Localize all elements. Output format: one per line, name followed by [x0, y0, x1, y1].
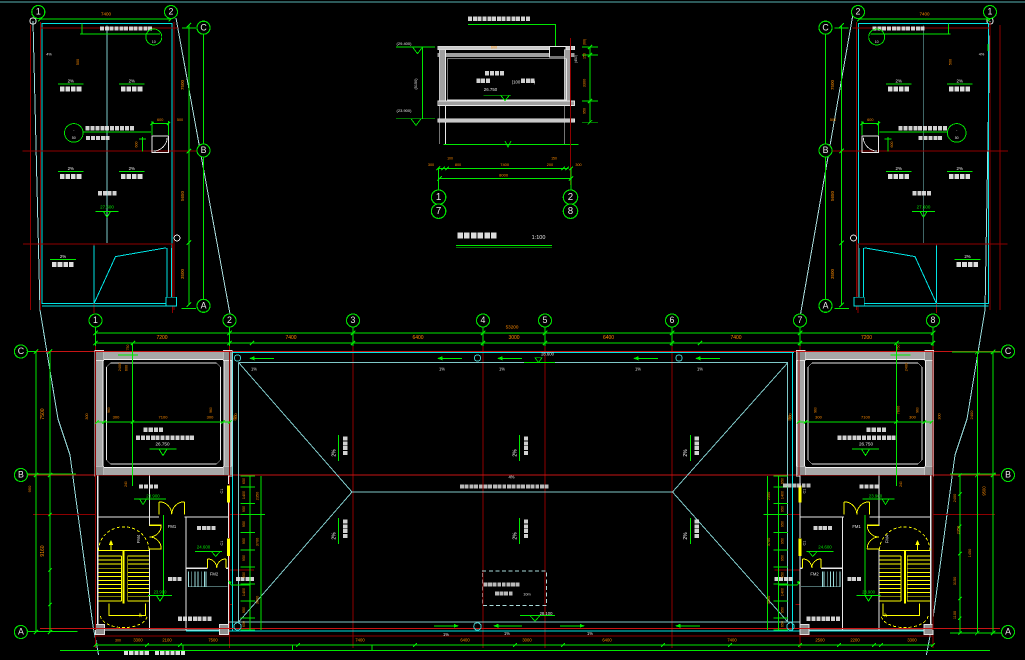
- svg-text:1: 1: [36, 7, 41, 17]
- svg-text:3700: 3700: [767, 538, 771, 546]
- svg-text:2F: 2F: [883, 612, 888, 617]
- svg-text:5650: 5650: [180, 190, 185, 201]
- svg-text:7500: 7500: [830, 79, 835, 90]
- svg-text:1%: 1%: [587, 631, 593, 636]
- svg-text:7100: 7100: [861, 415, 871, 420]
- svg-text:10m: 10m: [523, 592, 530, 596]
- svg-text:950: 950: [242, 572, 246, 578]
- svg-text:950: 950: [781, 572, 785, 578]
- svg-text:2%: 2%: [129, 78, 135, 83]
- svg-text:150: 150: [551, 157, 557, 161]
- svg-text:8: 8: [931, 315, 936, 325]
- svg-text:27.600: 27.600: [100, 205, 114, 210]
- svg-text:650: 650: [242, 621, 246, 627]
- svg-text:B: B: [201, 145, 207, 155]
- svg-text:3500: 3500: [830, 268, 835, 279]
- svg-text:23.900: 23.900: [862, 590, 875, 595]
- svg-text:2%: 2%: [512, 449, 518, 457]
- svg-text:FM4: FM4: [885, 534, 890, 543]
- svg-text:960: 960: [107, 407, 111, 413]
- svg-text:(23.900): (23.900): [397, 108, 413, 113]
- svg-text:3000: 3000: [767, 596, 771, 604]
- svg-text:600: 600: [157, 118, 163, 122]
- svg-text:1400: 1400: [781, 588, 785, 596]
- svg-text:23.900: 23.900: [154, 590, 167, 595]
- svg-text:2%: 2%: [683, 532, 689, 540]
- svg-text:2%: 2%: [332, 449, 338, 457]
- svg-text:5650: 5650: [830, 190, 835, 201]
- svg-text:7500: 7500: [208, 638, 218, 643]
- svg-text:2F: 2F: [138, 612, 143, 617]
- svg-text:3: 3: [351, 315, 356, 325]
- svg-text:750: 750: [126, 345, 130, 351]
- svg-text:3000: 3000: [522, 638, 532, 643]
- svg-text:C1: C1: [220, 489, 224, 494]
- svg-text:200: 200: [547, 163, 553, 167]
- svg-text:3000: 3000: [256, 596, 260, 604]
- svg-text:300: 300: [113, 415, 120, 420]
- svg-text:(60): (60): [583, 39, 587, 45]
- svg-text:7400: 7400: [919, 12, 930, 17]
- svg-text:1%: 1%: [504, 631, 510, 636]
- svg-text:C1: C1: [220, 541, 224, 546]
- svg-text:3300: 3300: [133, 638, 143, 643]
- svg-text:8: 8: [568, 206, 573, 217]
- svg-text:2%: 2%: [896, 166, 902, 171]
- svg-text:C: C: [1005, 346, 1012, 356]
- svg-text:7400: 7400: [730, 335, 741, 341]
- svg-text:6400: 6400: [412, 335, 423, 341]
- svg-text:1400: 1400: [242, 491, 246, 499]
- svg-text:9160: 9160: [40, 545, 46, 556]
- svg-text:7: 7: [436, 206, 441, 217]
- svg-text:1%: 1%: [443, 632, 449, 637]
- svg-text:7400: 7400: [285, 335, 296, 341]
- svg-text:50: 50: [72, 136, 76, 140]
- svg-text:(5150): (5150): [414, 78, 418, 90]
- svg-text:1400: 1400: [781, 491, 785, 499]
- svg-text:1%: 1%: [499, 367, 505, 372]
- svg-text:950: 950: [242, 538, 246, 544]
- svg-text:2400: 2400: [905, 363, 909, 371]
- svg-text:950: 950: [781, 555, 785, 561]
- svg-text:960: 960: [209, 407, 213, 413]
- svg-text:960: 960: [814, 407, 818, 413]
- svg-text:26.750: 26.750: [859, 441, 873, 446]
- svg-text:500: 500: [830, 118, 836, 122]
- svg-text:600: 600: [491, 46, 497, 50]
- svg-text:7400: 7400: [355, 638, 365, 643]
- svg-text:(450): (450): [574, 55, 578, 63]
- svg-text:1: 1: [436, 192, 441, 203]
- svg-text:7: 7: [798, 315, 803, 325]
- svg-text:6400: 6400: [602, 638, 612, 643]
- svg-text:1400: 1400: [242, 588, 246, 596]
- svg-text:2350: 2350: [767, 492, 771, 500]
- svg-text:250: 250: [233, 415, 237, 421]
- svg-text:1:100: 1:100: [532, 235, 546, 241]
- svg-text:28.600: 28.600: [541, 352, 554, 357]
- svg-text:2500: 2500: [815, 638, 825, 643]
- svg-text:7500: 7500: [40, 408, 46, 419]
- svg-text:950: 950: [242, 555, 246, 561]
- svg-text:950: 950: [27, 485, 32, 492]
- svg-text:A: A: [1005, 627, 1011, 637]
- svg-text:950: 950: [781, 521, 785, 527]
- svg-text:650: 650: [242, 478, 246, 484]
- svg-text:A: A: [18, 627, 24, 637]
- svg-text:C1: C1: [803, 541, 807, 546]
- svg-text:2350: 2350: [957, 526, 961, 534]
- svg-text:2200: 2200: [850, 638, 860, 643]
- svg-text:2%: 2%: [332, 532, 338, 540]
- svg-text:C: C: [822, 22, 829, 32]
- svg-text:500: 500: [177, 118, 183, 122]
- svg-text:150: 150: [583, 53, 587, 59]
- svg-text:300: 300: [428, 163, 434, 167]
- svg-text:950: 950: [242, 506, 246, 512]
- svg-text:240: 240: [899, 481, 903, 487]
- svg-text:250: 250: [788, 415, 792, 421]
- svg-text:650: 650: [781, 621, 785, 627]
- svg-text:7100: 7100: [159, 415, 169, 420]
- svg-text:2: 2: [227, 315, 232, 325]
- svg-text:(29.400): (29.400): [397, 41, 413, 46]
- svg-text:500: 500: [76, 59, 80, 65]
- svg-text:1100: 1100: [953, 611, 957, 619]
- svg-text:2350: 2350: [256, 492, 260, 500]
- svg-text:650: 650: [781, 478, 785, 484]
- svg-text:6400: 6400: [460, 638, 470, 643]
- svg-text:B: B: [18, 470, 24, 480]
- svg-text:9500: 9500: [982, 486, 987, 496]
- svg-text:1450: 1450: [968, 549, 972, 557]
- svg-text:240: 240: [124, 481, 128, 487]
- svg-text:A: A: [201, 300, 207, 310]
- svg-text:7500: 7500: [180, 79, 185, 90]
- svg-text:2%: 2%: [896, 78, 902, 83]
- svg-text:50: 50: [955, 136, 959, 140]
- svg-text:1: 1: [988, 7, 993, 17]
- svg-text:7200: 7200: [861, 335, 872, 341]
- svg-text:500: 500: [949, 59, 953, 65]
- svg-text:10: 10: [875, 40, 879, 44]
- svg-text:4: 4: [481, 315, 486, 325]
- svg-text:27.600: 27.600: [917, 205, 931, 210]
- svg-text:3300: 3300: [907, 638, 917, 643]
- svg-text:7400: 7400: [500, 162, 510, 167]
- svg-text:800: 800: [455, 163, 461, 167]
- svg-text:1: 1: [93, 315, 98, 325]
- svg-text:950: 950: [781, 607, 785, 613]
- svg-text:300: 300: [938, 413, 942, 419]
- svg-text:2%: 2%: [512, 532, 518, 540]
- svg-text:2%: 2%: [129, 166, 135, 171]
- svg-text:B: B: [1005, 470, 1011, 480]
- svg-text:2%: 2%: [68, 166, 74, 171]
- svg-text:(100: (100: [512, 80, 521, 85]
- svg-text:7600: 7600: [897, 406, 901, 414]
- svg-text:2%: 2%: [683, 449, 689, 457]
- svg-text:6: 6: [670, 315, 675, 325]
- svg-text:3700: 3700: [256, 538, 260, 546]
- svg-text:B: B: [823, 145, 829, 155]
- svg-text:1%: 1%: [635, 367, 641, 372]
- svg-text:950: 950: [781, 506, 785, 512]
- svg-text:1%: 1%: [697, 367, 703, 372]
- svg-text:5: 5: [543, 315, 548, 325]
- svg-text:1%: 1%: [251, 367, 257, 372]
- svg-text:300: 300: [909, 415, 916, 420]
- svg-text:950: 950: [242, 607, 246, 613]
- svg-text:2%: 2%: [68, 78, 74, 83]
- svg-text:A: A: [823, 300, 829, 310]
- svg-text:FM1: FM1: [168, 524, 177, 529]
- svg-text:600: 600: [890, 142, 894, 148]
- svg-text:2: 2: [169, 7, 174, 17]
- svg-text:2%: 2%: [957, 78, 963, 83]
- svg-text:300: 300: [575, 163, 581, 167]
- svg-text:24.600: 24.600: [818, 544, 832, 549]
- svg-text:7200: 7200: [156, 335, 167, 341]
- svg-text:950: 950: [242, 521, 246, 527]
- svg-text:7400: 7400: [101, 12, 112, 17]
- svg-text:300: 300: [85, 413, 89, 419]
- svg-text:3300: 3300: [583, 79, 587, 87]
- svg-text:6400: 6400: [603, 335, 614, 341]
- svg-text:3000: 3000: [508, 335, 519, 341]
- svg-text:750: 750: [897, 345, 901, 351]
- svg-text:4%: 4%: [979, 53, 985, 57]
- svg-text:23.900: 23.900: [869, 493, 883, 498]
- svg-text:950: 950: [781, 538, 785, 544]
- svg-text:1%: 1%: [439, 367, 445, 372]
- svg-text:600: 600: [135, 142, 139, 148]
- svg-text:300: 300: [207, 415, 214, 420]
- svg-text:960: 960: [916, 407, 920, 413]
- svg-text:300: 300: [115, 639, 121, 643]
- svg-text:FM2: FM2: [810, 572, 819, 577]
- svg-text:600: 600: [867, 118, 873, 122]
- svg-text:FM1: FM1: [852, 524, 861, 529]
- svg-text:300: 300: [815, 415, 822, 420]
- svg-text:2100: 2100: [162, 638, 172, 643]
- svg-text:4%: 4%: [508, 474, 514, 479]
- svg-text:600: 600: [125, 365, 129, 371]
- svg-text:4%: 4%: [46, 53, 52, 57]
- svg-text:2: 2: [568, 192, 573, 203]
- svg-text:2%: 2%: [957, 166, 963, 171]
- svg-text:950: 950: [583, 108, 587, 114]
- svg-text:3500: 3500: [180, 268, 185, 279]
- svg-text:3150: 3150: [953, 577, 957, 585]
- svg-text:23.900: 23.900: [146, 493, 160, 498]
- svg-text:2%: 2%: [964, 254, 970, 259]
- svg-text:53200: 53200: [506, 325, 519, 330]
- svg-text:FM2: FM2: [210, 572, 219, 577]
- svg-text:24.600: 24.600: [197, 544, 211, 549]
- svg-text:8000: 8000: [499, 173, 509, 178]
- svg-text:10: 10: [152, 40, 156, 44]
- svg-text:2%: 2%: [60, 254, 66, 259]
- svg-text:100: 100: [447, 157, 453, 161]
- svg-text:2400: 2400: [953, 494, 957, 502]
- svg-text:2: 2: [856, 7, 861, 17]
- svg-text:2400: 2400: [118, 363, 122, 371]
- svg-text:FM4: FM4: [136, 534, 141, 543]
- svg-text:C: C: [200, 22, 207, 32]
- svg-text:C1: C1: [803, 489, 807, 494]
- svg-text:7400: 7400: [727, 638, 737, 643]
- svg-text:26.750: 26.750: [484, 87, 498, 92]
- svg-text:C: C: [18, 346, 25, 356]
- svg-text:26.750: 26.750: [155, 441, 169, 446]
- svg-text:2400: 2400: [969, 410, 974, 420]
